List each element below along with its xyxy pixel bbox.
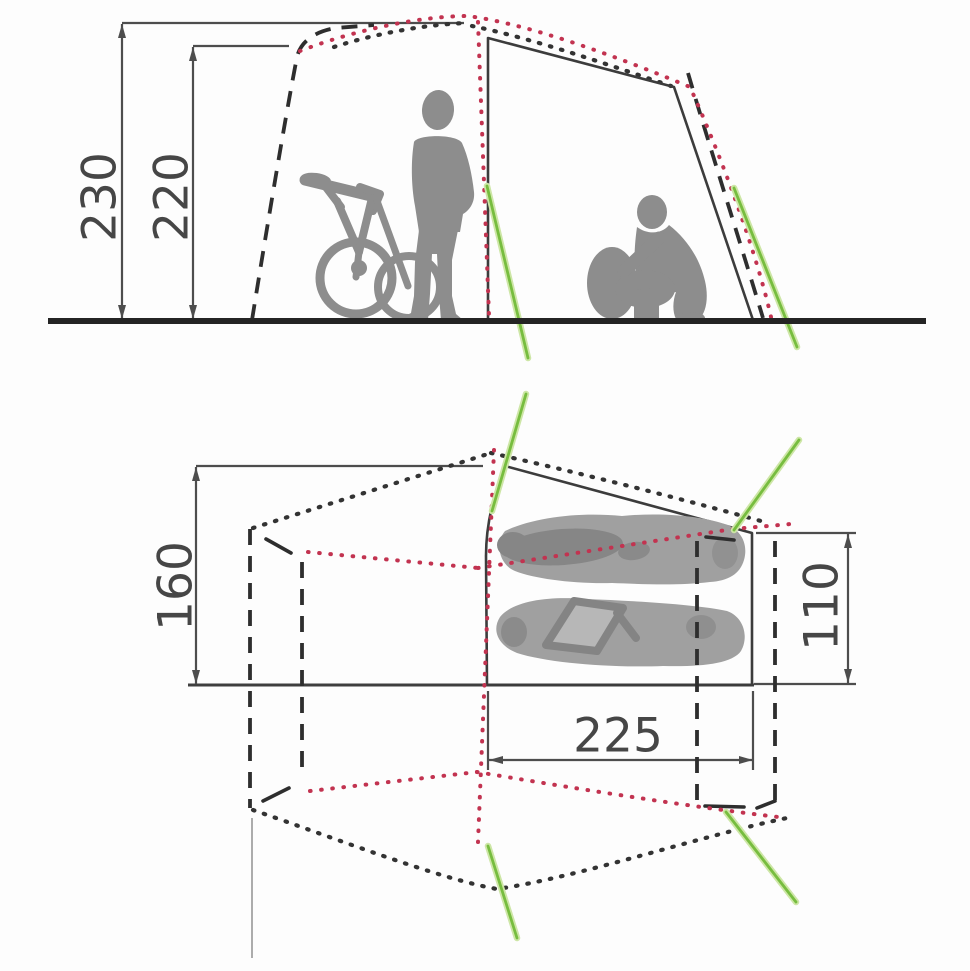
- dim-225-arrow-right: [739, 756, 753, 764]
- guyline-plan-top-right: [734, 440, 799, 530]
- rear-dashed-bottom-b: [757, 801, 775, 808]
- dim-160-arrow-top: [192, 467, 200, 481]
- inner-dotted-red-lower-left: [310, 772, 477, 791]
- diagram-canvas: 230 220: [0, 0, 970, 971]
- footprint-dotted-top-right: [491, 453, 761, 521]
- dim-110-arrow-bottom: [844, 669, 852, 683]
- sleeper-head-top: [712, 537, 738, 569]
- dim-110-arrow-top: [844, 534, 852, 548]
- flysheet-dotted-black-right: [472, 26, 671, 86]
- floor-plan-view: 160 110 225: [148, 394, 856, 958]
- side-elevation-view: 230 220: [48, 16, 926, 358]
- footprint-dotted-bottom: [253, 810, 787, 889]
- dim-220-label: 220: [144, 152, 199, 242]
- dim-230-label: 230: [72, 152, 127, 242]
- inner-dotted-red-lower-right: [477, 772, 787, 818]
- sleeper-head-bottom: [686, 615, 716, 639]
- dim-225-label: 225: [573, 708, 663, 763]
- dim-230-arrow-bottom: [118, 305, 126, 319]
- tent-dimension-diagram: 230 220: [0, 0, 970, 971]
- guyline-elevation-left: [487, 186, 528, 358]
- footprint-dotted-top-left: [253, 453, 491, 528]
- guyline-plan-bottom-left: [488, 846, 517, 938]
- guyline-plan-top-left: [492, 394, 526, 511]
- dim-160-label: 160: [148, 541, 203, 631]
- dim-225-arrow-left: [489, 756, 503, 764]
- sleeping-bag-top: [497, 514, 745, 584]
- dim-160-arrow-bottom: [192, 670, 200, 684]
- vestibule-dashed-corner-top: [266, 539, 291, 553]
- crouching-person-silhouette: [587, 195, 707, 324]
- dim-220-arrow-bottom: [189, 305, 197, 319]
- inner-dotted-red-upper-left: [308, 552, 478, 568]
- dim-230-arrow-top: [118, 24, 126, 38]
- sleeping-bag-bottom: [496, 598, 744, 666]
- dim-110-label: 110: [794, 561, 849, 651]
- dim-220-arrow-top: [189, 47, 197, 61]
- vestibule-dashed-corner-bottom: [263, 788, 289, 801]
